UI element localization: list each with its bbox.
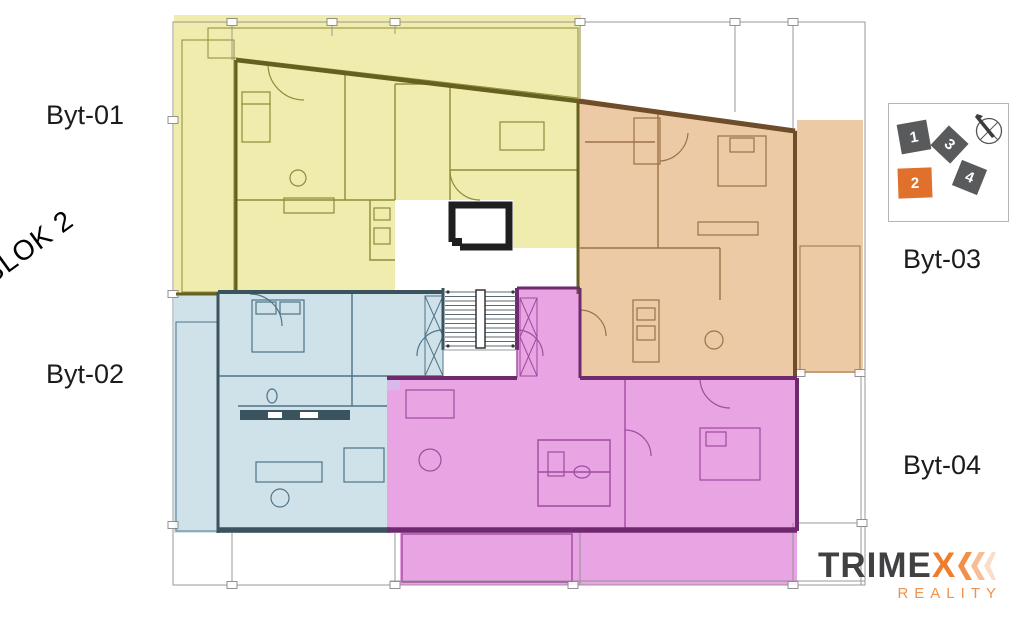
logo-wordmark: TRIMEX — [818, 548, 956, 583]
legend-unit-1: 1 — [897, 120, 932, 155]
legend-unit-3: 3 — [930, 125, 968, 163]
legend-unit-2-highlighted: 2 — [897, 167, 932, 198]
byt-03-area — [578, 98, 797, 378]
logo-text-main: TRIME — [818, 546, 932, 585]
label-byt-04: Byt-04 — [903, 450, 981, 481]
stair-handrail — [476, 290, 485, 348]
legend-unit-1-number: 1 — [908, 128, 919, 146]
compass-icon — [971, 112, 1005, 146]
logo-tagline: REALITY — [818, 585, 1018, 602]
floorplan-drawing — [0, 0, 1024, 621]
unit-legend: 1 3 2 4 — [888, 103, 1009, 222]
label-byt-03: Byt-03 — [903, 244, 981, 275]
logo-chevrons-icon — [958, 551, 996, 581]
logo-text-accent: X — [932, 546, 956, 585]
legend-unit-2-number: 2 — [911, 174, 920, 191]
byt-02-kitchen-counter — [240, 410, 350, 420]
trimex-logo: TRIMEX REALITY — [818, 548, 1018, 602]
label-byt-02: Byt-02 — [46, 359, 124, 390]
legend-unit-4: 4 — [952, 160, 987, 195]
elevator-step — [452, 238, 462, 246]
legend-unit-3-number: 3 — [941, 135, 959, 153]
legend-unit-4-number: 4 — [962, 168, 976, 187]
byt-01-area-annex — [513, 200, 581, 248]
floorplan-page: BLOK 2 Byt-01 Byt-02 Byt-03 Byt-04 1 3 2… — [0, 0, 1024, 621]
label-byt-01: Byt-01 — [46, 100, 124, 131]
